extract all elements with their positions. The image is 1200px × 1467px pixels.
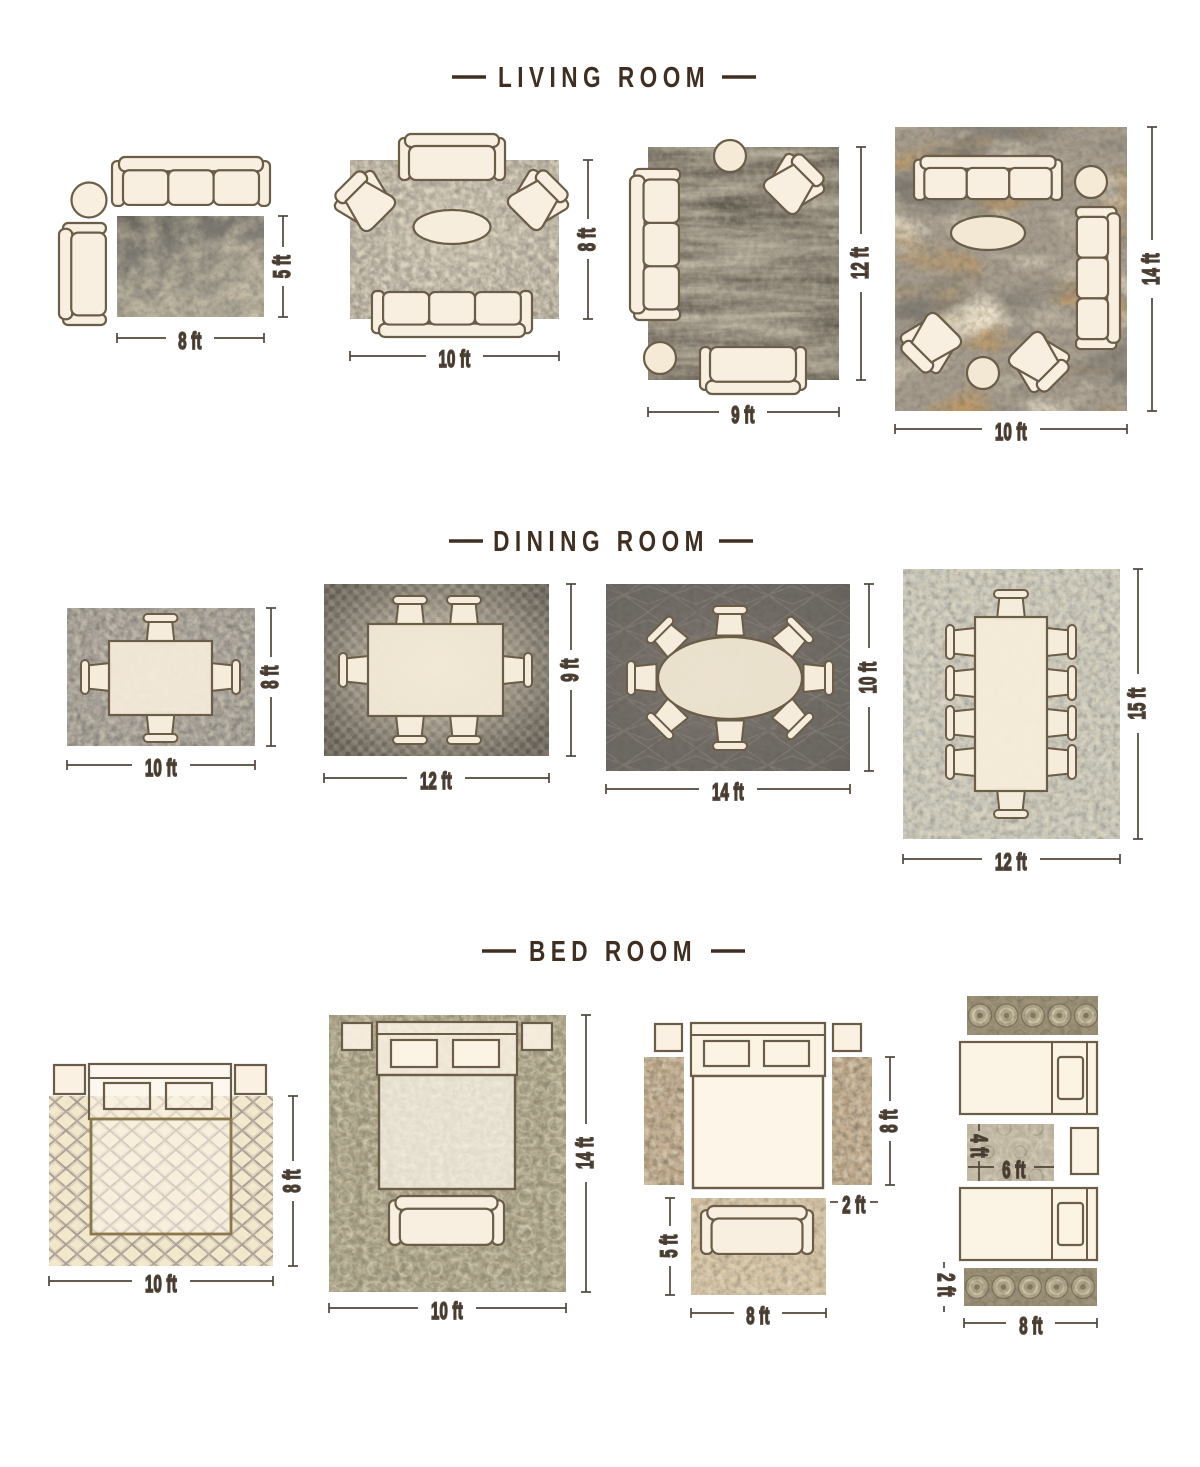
svg-text:8 ft: 8 ft: [1019, 1314, 1043, 1340]
svg-text:6 ft: 6 ft: [1002, 1158, 1026, 1184]
svg-text:10 ft: 10 ft: [431, 1299, 463, 1325]
svg-text:8 ft: 8 ft: [575, 228, 601, 252]
svg-text:8 ft: 8 ft: [746, 1304, 770, 1330]
svg-text:14 ft: 14 ft: [1139, 253, 1165, 285]
svg-text:12 ft: 12 ft: [848, 247, 874, 279]
svg-text:10 ft: 10 ft: [856, 661, 882, 693]
svg-text:5 ft: 5 ft: [657, 1234, 683, 1258]
svg-text:8 ft: 8 ft: [258, 665, 284, 689]
svg-text:14 ft: 14 ft: [712, 780, 744, 806]
svg-text:8 ft: 8 ft: [877, 1109, 903, 1133]
svg-text:9 ft: 9 ft: [558, 658, 584, 682]
svg-text:9 ft: 9 ft: [731, 403, 755, 429]
svg-text:12 ft: 12 ft: [995, 850, 1027, 876]
svg-text:BED ROOM: BED ROOM: [529, 934, 697, 967]
svg-text:12 ft: 12 ft: [420, 769, 452, 795]
svg-text:10 ft: 10 ft: [995, 420, 1027, 446]
svg-text:10 ft: 10 ft: [145, 1272, 177, 1298]
svg-text:5 ft: 5 ft: [270, 255, 296, 279]
svg-text:14 ft: 14 ft: [573, 1137, 599, 1169]
svg-text:4 ft: 4 ft: [965, 1134, 991, 1158]
svg-text:DINING ROOM: DINING ROOM: [493, 524, 709, 557]
svg-text:10 ft: 10 ft: [438, 347, 470, 373]
svg-text:LIVING ROOM: LIVING ROOM: [498, 60, 710, 93]
svg-text:15 ft: 15 ft: [1125, 687, 1151, 719]
svg-text:8 ft: 8 ft: [178, 329, 202, 355]
svg-text:2 ft: 2 ft: [932, 1273, 958, 1297]
svg-text:8 ft: 8 ft: [280, 1169, 306, 1193]
svg-text:10 ft: 10 ft: [145, 756, 177, 782]
svg-text:2 ft: 2 ft: [842, 1193, 866, 1219]
